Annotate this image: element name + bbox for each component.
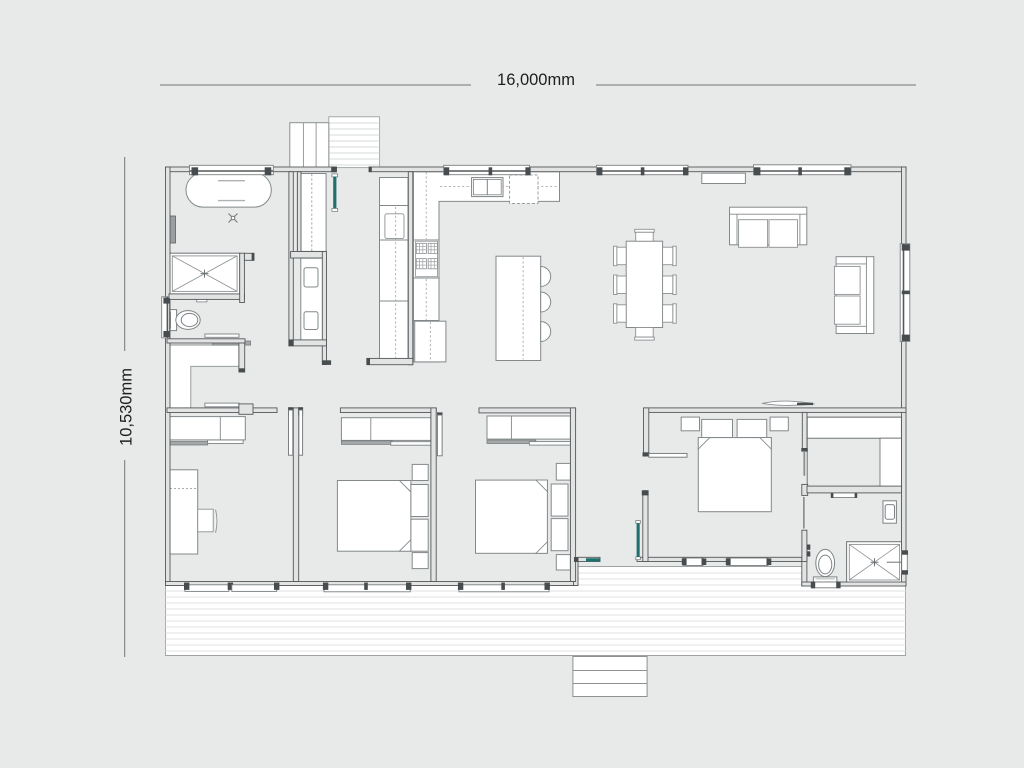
- svg-text:16,000mm: 16,000mm: [497, 71, 575, 89]
- svg-text:10,530mm: 10,530mm: [118, 368, 136, 446]
